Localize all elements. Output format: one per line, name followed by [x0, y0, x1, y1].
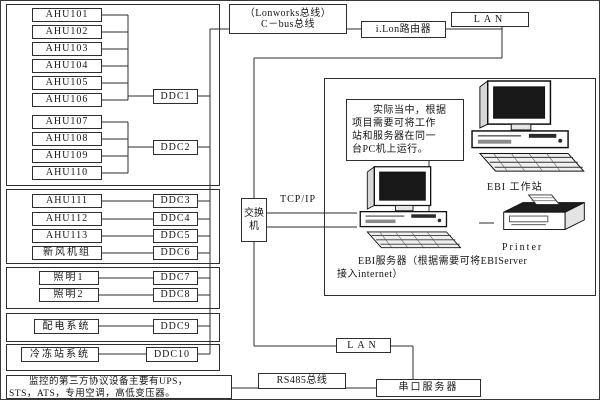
device-box-ahu113: AHU113	[32, 229, 102, 243]
device-box-ahu111: AHU111	[32, 194, 102, 208]
device-box-lighting-1: 照明1	[39, 271, 99, 285]
controller-box-ddc9: DDC9	[153, 319, 198, 334]
lan-bottom-box: LAN	[336, 338, 391, 353]
ebi-workstation-computer-icon	[453, 79, 593, 177]
device-box-ahu102: AHU102	[32, 25, 102, 39]
controller-box-ddc3: DDC3	[153, 194, 198, 208]
switch-box: 交换机	[241, 198, 267, 242]
device-box-ahu103: AHU103	[32, 42, 102, 56]
controller-box-ddc8: DDC8	[153, 288, 198, 302]
device-box-lighting-2: 照明2	[39, 288, 99, 302]
device-box-ahu110: AHU110	[32, 166, 102, 180]
device-box-ahu101: AHU101	[32, 8, 102, 22]
ebi-server-caption: EBI服务器（根据需要可将EBIServer 接入internet）	[337, 255, 593, 281]
tcpip-label: TCP/IP	[280, 194, 316, 205]
controller-box-ddc5: DDC5	[153, 229, 198, 243]
ebi-server-computer-icon	[331, 165, 481, 253]
rs485-bus-box: RS485总线	[258, 373, 346, 389]
controller-box-ddc10: DDC10	[146, 347, 198, 362]
printer-icon	[494, 193, 594, 241]
device-box-ahu106: AHU106	[32, 93, 102, 107]
serial-server-box: 串口服务器	[376, 379, 481, 397]
controller-box-ddc4: DDC4	[153, 212, 198, 226]
printer-label: Printer	[502, 242, 543, 253]
ebi-note-box: 实际当中，根据 项目需要可将工作 站和服务器在同一 台PC机上运行。	[346, 99, 464, 161]
third-party-devices-box: 监控的第三方协议设备主要有UPS， STS，ATS，专用空调，高低变压器。	[6, 375, 232, 399]
device-box-power-system: 配电系统	[34, 319, 99, 334]
device-box-ahu108: AHU108	[32, 132, 102, 146]
ebi-workstation-label: EBI 工作站	[487, 178, 543, 193]
lan-top-box: LAN	[451, 12, 529, 27]
cbus-label-box: （Lonworks总线） C－bus总线	[229, 4, 347, 34]
device-box-fresh-air-unit: 新风机组	[32, 246, 102, 260]
controller-box-ddc7: DDC7	[153, 271, 198, 285]
device-box-ahu104: AHU104	[32, 59, 102, 73]
device-box-ahu112: AHU112	[32, 212, 102, 226]
device-box-chiller-station: 冷冻站系统	[21, 347, 99, 362]
device-box-ahu105: AHU105	[32, 76, 102, 90]
device-box-ahu107: AHU107	[32, 115, 102, 129]
ilon-router-box: i.Lon路由器	[361, 21, 446, 38]
device-box-ahu109: AHU109	[32, 149, 102, 163]
bas-network-diagram: AHU101 AHU102 AHU103 AHU104 AHU105 AHU10…	[0, 0, 600, 400]
controller-box-ddc2: DDC2	[153, 140, 198, 155]
controller-box-ddc1: DDC1	[153, 89, 198, 104]
controller-box-ddc6: DDC6	[153, 246, 198, 260]
